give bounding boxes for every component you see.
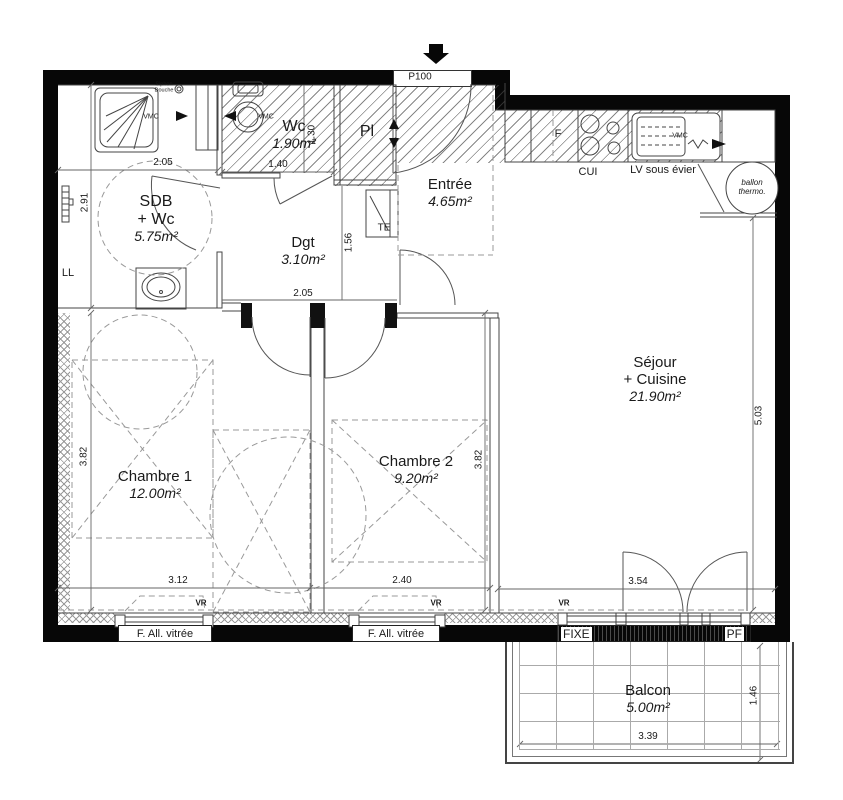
floor-plan: F. All. vitrée F. All. vitrée FIXE PF SD… xyxy=(0,0,843,800)
room-sdb: SDB + Wc 5.75m² xyxy=(134,193,178,244)
dim-wc-height: 1.30 xyxy=(307,118,318,152)
dim-sdb-height: 2.91 xyxy=(80,186,91,220)
hob xyxy=(581,115,620,155)
shutter-label-1: VR xyxy=(195,599,206,608)
room-chambre2-area: 9.20m² xyxy=(379,471,453,487)
window2-label: F. All. vitrée xyxy=(368,628,424,640)
room-sejour-name: Séjour + Cuisine xyxy=(624,355,687,389)
window2-shutter-wedge xyxy=(358,596,438,611)
room-entree-name: Entrée xyxy=(428,177,472,194)
dim-c1-width: 3.12 xyxy=(161,575,195,586)
door-mark-down-icon xyxy=(389,138,399,148)
toilet xyxy=(233,82,263,132)
dim-c2-height: 3.82 xyxy=(474,443,485,477)
c1-furniture2-outline xyxy=(213,430,310,612)
shutter-label-2: VR xyxy=(430,599,441,608)
room-pl: Pl xyxy=(360,123,374,141)
room-dgt: Dgt 3.10m² xyxy=(281,235,325,267)
room-dgt-name: Dgt xyxy=(281,235,325,252)
vmc-arrow-wc-icon xyxy=(224,111,236,121)
room-chambre1: Chambre 1 12.00m² xyxy=(118,469,192,501)
wall-jambs xyxy=(241,303,397,328)
shutter-label-3: VR xyxy=(558,599,569,608)
dishwasher-label: LV sous évier xyxy=(630,164,696,176)
dim-sdb-width: 2.05 xyxy=(146,157,180,168)
room-balcon-area: 5.00m² xyxy=(625,700,671,716)
room-sdb-name: SDB + Wc xyxy=(134,193,178,229)
dim-wc-width: 1.40 xyxy=(261,159,295,170)
chambre2-door xyxy=(325,318,385,378)
window2: F. All. vitrée xyxy=(352,625,440,642)
window1-shutter-wedge xyxy=(125,596,205,611)
bay-window: FIXE PF xyxy=(557,625,751,642)
water-heater-label: ballon thermo. xyxy=(738,179,765,197)
chambre1-door xyxy=(252,317,310,377)
room-sdb-area: 5.75m² xyxy=(134,229,178,245)
room-chambre1-area: 12.00m² xyxy=(118,486,192,502)
bay-fixed-label: FIXE xyxy=(561,627,592,641)
room-chambre2-name: Chambre 2 xyxy=(379,454,453,471)
kitchen-label: CUI xyxy=(579,166,598,178)
dim-balcon-height: 1.46 xyxy=(749,679,760,713)
room-chambre2: Chambre 2 9.20m² xyxy=(379,454,453,486)
dim-c1-height: 3.82 xyxy=(79,440,90,474)
entree-zone-outline xyxy=(398,85,493,255)
dim-sejour-bay: 3.54 xyxy=(621,576,655,587)
room-chambre1-name: Chambre 1 xyxy=(118,469,192,486)
dim-c2-width: 2.40 xyxy=(385,575,419,586)
dim-sejour-height: 5.03 xyxy=(754,399,765,433)
c2-bed-outline xyxy=(332,420,487,562)
room-sejour-area: 21.90m² xyxy=(624,389,687,405)
room-pl-name: Pl xyxy=(360,123,374,141)
water-heater-door xyxy=(698,164,724,212)
vmc-label-shower: VMC xyxy=(143,114,159,121)
room-entree-area: 4.65m² xyxy=(428,194,472,210)
room-dgt-area: 3.10m² xyxy=(281,252,325,268)
wc-door xyxy=(274,176,332,204)
room-balcon-name: Balcon xyxy=(625,683,671,700)
c1-circle-furniture xyxy=(83,315,197,429)
vmc-label-wc: VMC xyxy=(258,114,274,121)
dim-dgt-height: 1.56 xyxy=(344,226,355,260)
siphon-label: Siphon Douche xyxy=(155,83,174,94)
window1-label: F. All. vitrée xyxy=(137,628,193,640)
shower-tray xyxy=(95,85,183,152)
electrical-panel-label: TE xyxy=(378,223,391,234)
entrance-door-code: P100 xyxy=(408,72,431,83)
room-entree: Entrée 4.65m² xyxy=(428,177,472,209)
room-sejour: Séjour + Cuisine 21.90m² xyxy=(624,355,687,404)
fridge-label: F xyxy=(555,128,562,140)
vmc-label-kitchen: VMC xyxy=(672,133,688,140)
entrance-door xyxy=(393,85,471,173)
dgt-sejour-door xyxy=(400,250,455,305)
dim-balcon-width: 3.39 xyxy=(631,731,665,742)
c1-bed-outline xyxy=(72,360,213,538)
room-balcon: Balcon 5.00m² xyxy=(625,683,671,715)
towel-radiator xyxy=(62,186,73,222)
c1-circle2-furniture xyxy=(210,437,366,593)
window1: F. All. vitrée xyxy=(118,625,212,642)
bay-door-label: PF xyxy=(725,627,744,641)
dim-dgt-width: 2.05 xyxy=(286,288,320,299)
door-mark-up-icon xyxy=(389,119,399,129)
bay-frame xyxy=(558,613,750,625)
vmc-arrow-shower-icon xyxy=(176,111,188,121)
washing-machine-label: LL xyxy=(62,267,74,279)
